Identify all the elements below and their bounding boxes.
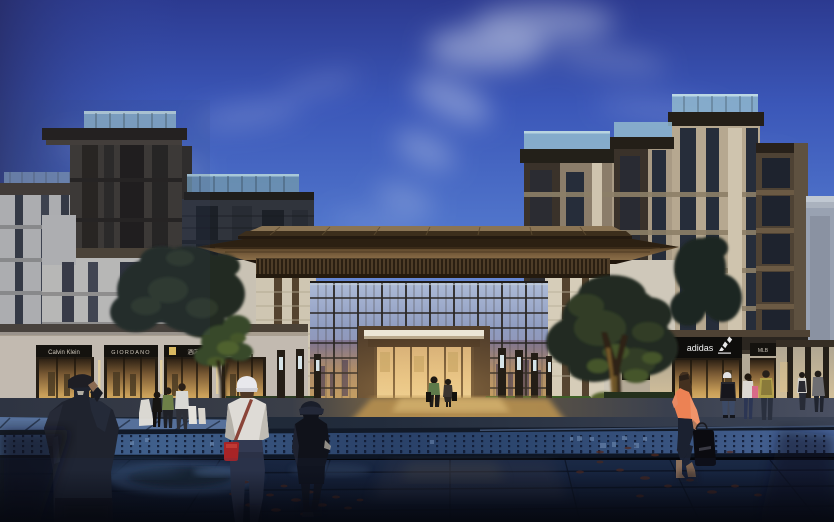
svg-text:adidas: adidas bbox=[687, 343, 714, 353]
svg-text:GIORDANO: GIORDANO bbox=[111, 350, 151, 356]
svg-text:Calvin Klein: Calvin Klein bbox=[48, 350, 80, 356]
svg-text:MLB: MLB bbox=[758, 348, 769, 354]
